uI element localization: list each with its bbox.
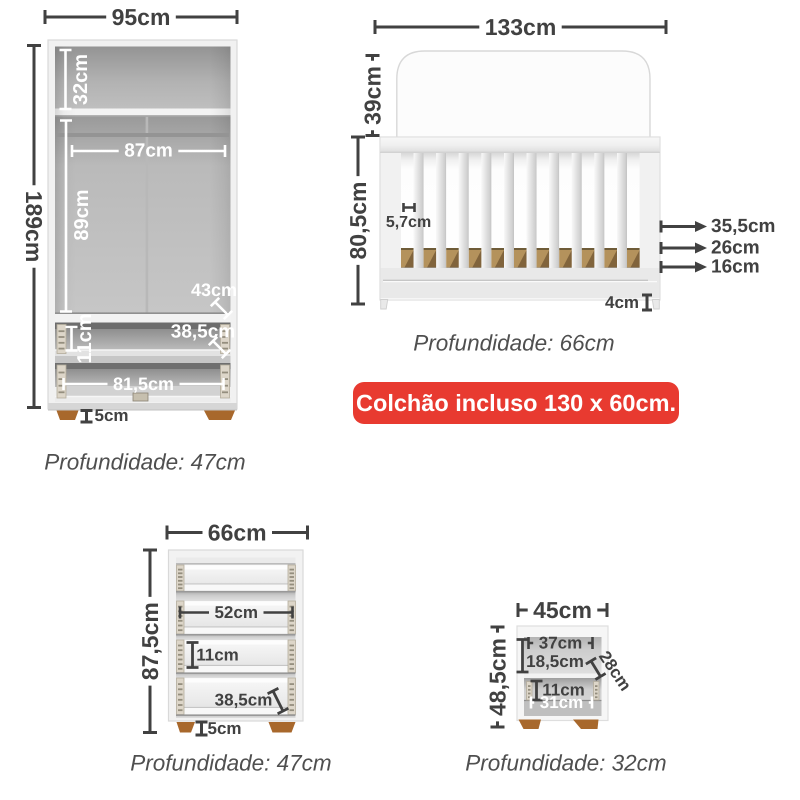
- svg-text:38,5cm: 38,5cm: [215, 691, 273, 710]
- svg-text:45cm: 45cm: [533, 597, 592, 623]
- svg-text:38,5cm: 38,5cm: [171, 322, 235, 343]
- svg-text:66cm: 66cm: [208, 520, 267, 546]
- svg-text:133cm: 133cm: [485, 14, 557, 40]
- svg-text:26cm: 26cm: [711, 238, 760, 259]
- svg-text:Profundidade: 47cm: Profundidade: 47cm: [130, 751, 331, 776]
- svg-text:95cm: 95cm: [112, 4, 171, 30]
- svg-text:87cm: 87cm: [124, 141, 173, 162]
- svg-text:Profundidade: 47cm: Profundidade: 47cm: [44, 450, 245, 475]
- svg-text:5cm: 5cm: [94, 406, 128, 425]
- svg-text:52cm: 52cm: [214, 603, 257, 622]
- svg-text:48,5cm: 48,5cm: [485, 638, 511, 716]
- svg-text:80,5cm: 80,5cm: [345, 181, 371, 259]
- svg-text:Colchão incluso 130 x 60cm.: Colchão incluso 130 x 60cm.: [356, 390, 676, 416]
- svg-text:32cm: 32cm: [70, 54, 92, 105]
- svg-text:18,5cm: 18,5cm: [526, 652, 584, 671]
- svg-text:Profundidade: 32cm: Profundidade: 32cm: [465, 751, 666, 776]
- svg-text:39cm: 39cm: [360, 66, 386, 125]
- svg-text:Profundidade: 66cm: Profundidade: 66cm: [413, 331, 614, 356]
- svg-text:31cm: 31cm: [540, 693, 583, 712]
- svg-text:35,5cm: 35,5cm: [711, 216, 775, 237]
- svg-text:81,5cm: 81,5cm: [113, 374, 174, 394]
- svg-text:4cm: 4cm: [605, 293, 639, 312]
- svg-text:87,5cm: 87,5cm: [137, 602, 163, 680]
- svg-text:11cm: 11cm: [74, 313, 96, 363]
- svg-text:11cm: 11cm: [196, 646, 239, 665]
- svg-text:16cm: 16cm: [711, 257, 760, 278]
- svg-text:89cm: 89cm: [71, 189, 93, 240]
- svg-text:43cm: 43cm: [191, 280, 237, 300]
- svg-text:189cm: 189cm: [21, 191, 47, 263]
- svg-text:5cm: 5cm: [207, 719, 241, 738]
- svg-text:5,7cm: 5,7cm: [386, 214, 431, 231]
- svg-text:37cm: 37cm: [539, 634, 582, 653]
